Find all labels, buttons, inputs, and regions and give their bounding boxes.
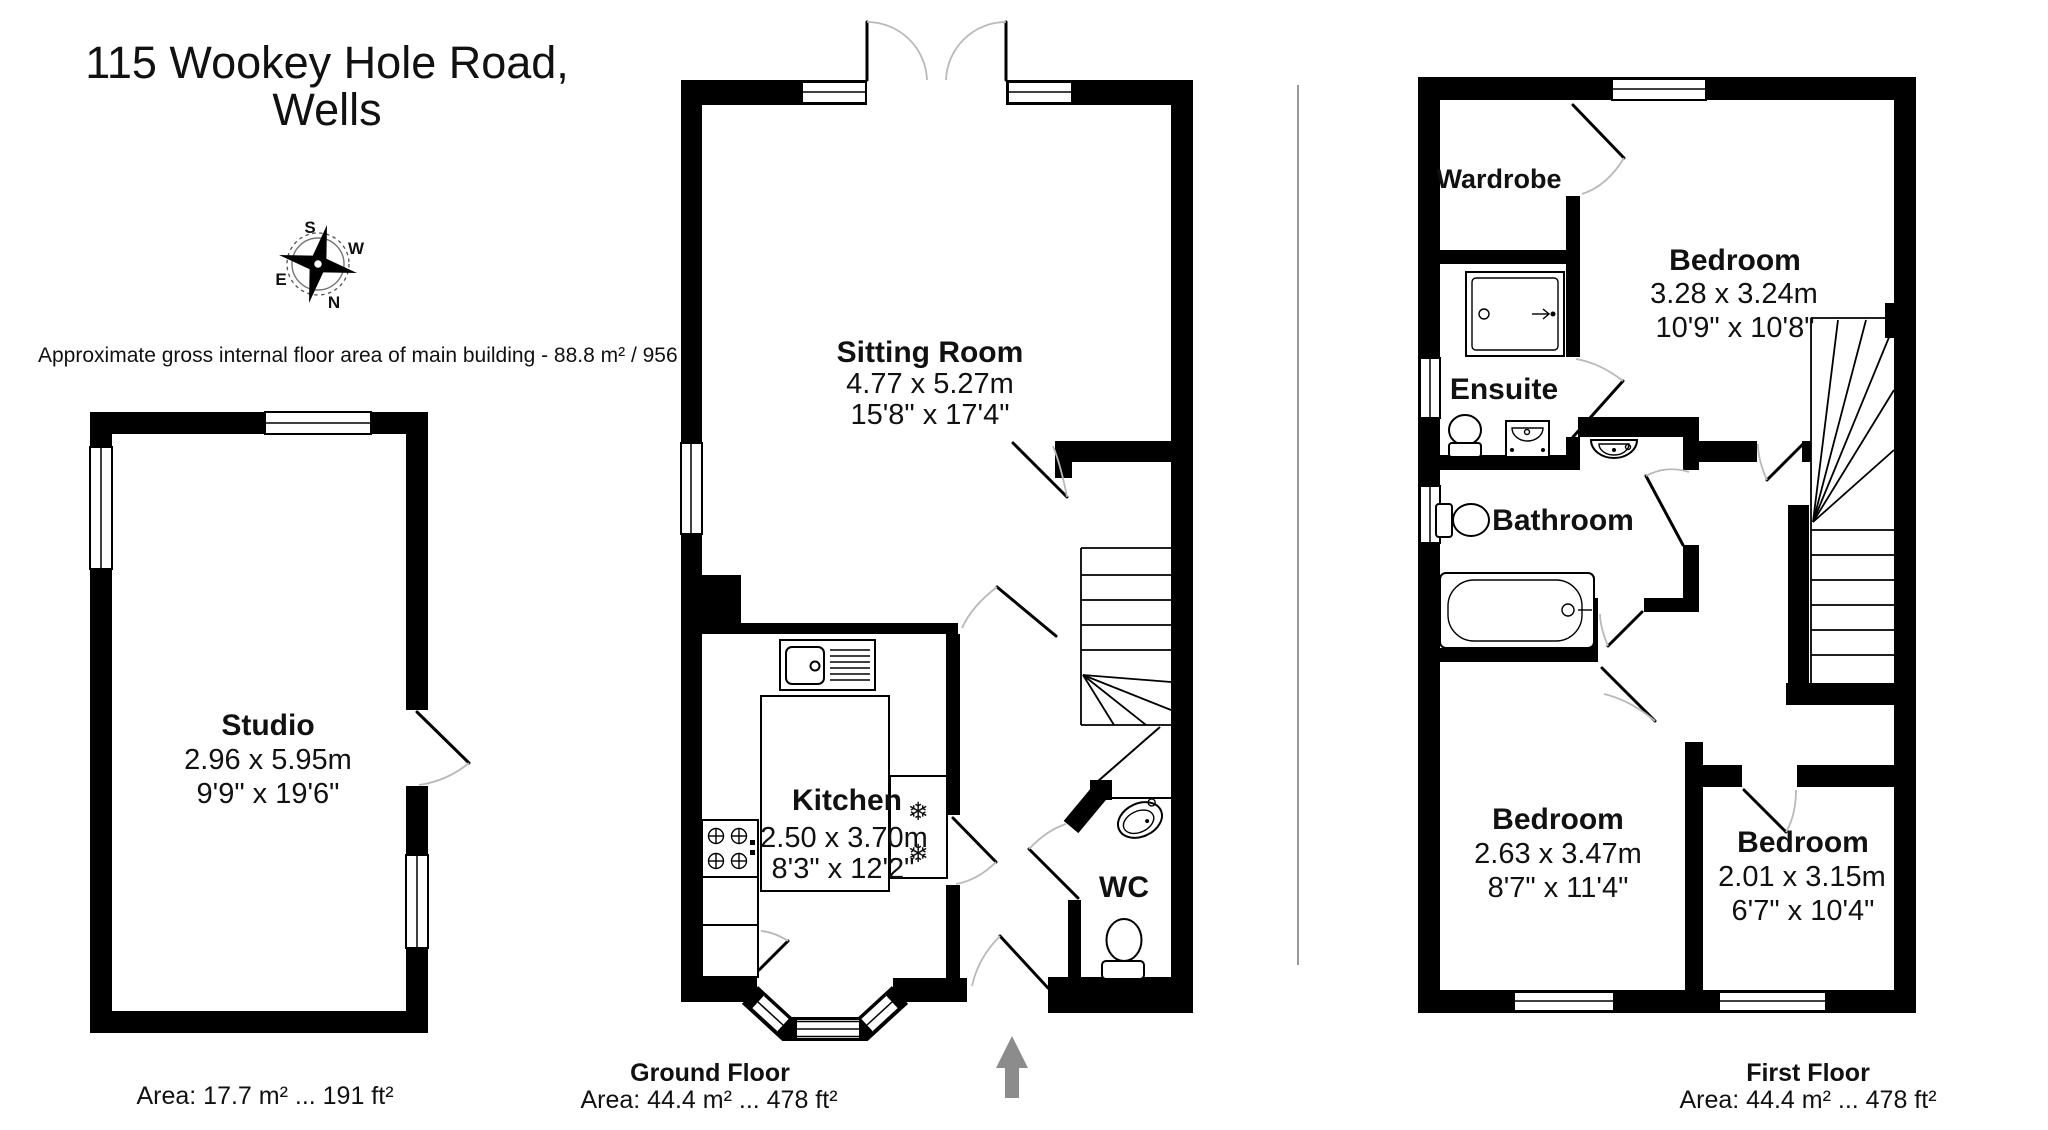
ground-floorplan: ❄ ❄ Sitting Room 4.77 x 5.27m (580, 22, 1193, 1114)
wardrobe-door (1573, 105, 1624, 194)
ground-floor-area: Area: 44.4 m² ... 478 ft² (580, 1086, 837, 1114)
gross-area-note: Approximate gross internal floor area of… (38, 344, 702, 367)
page-title-line2: Wells (272, 84, 381, 135)
bedroom2-metric: 2.63 x 3.47m (1474, 838, 1642, 870)
wc-chamfer-wall (1071, 791, 1101, 827)
ground-stairs (1081, 548, 1171, 725)
page-title-line1: 115 Wookey Hole Road, (85, 37, 569, 88)
kitchen-imperial: 8'3" x 12'2" (772, 853, 915, 885)
first-window-bottom-right (1719, 992, 1826, 1011)
kitchen-counter-door (759, 931, 788, 970)
kitchen-sink (780, 640, 875, 690)
kitchen-door-lower (953, 818, 996, 884)
bedroom1-door (1758, 443, 1804, 480)
bedroom1-name: Bedroom (1669, 244, 1801, 277)
studio-room-metric: 2.96 x 5.95m (184, 744, 352, 776)
bathroom-name: Bathroom (1492, 504, 1634, 537)
first-stairs (1811, 318, 1894, 683)
bedroom2-imperial: 8'7" x 11'4" (1488, 872, 1629, 904)
ground-floor-label: Ground Floor (630, 1059, 790, 1087)
bathroom-toilet (1436, 504, 1489, 537)
wc-name: WC (1099, 871, 1149, 904)
studio-floorplan: Studio 2.96 x 5.95m 9'9" x 19'6" Area: 1… (90, 412, 469, 1110)
first-window-top (1612, 79, 1706, 100)
bay-window (750, 995, 900, 1037)
floorplan-page: 115 Wookey Hole Road, Wells Approximate … (0, 0, 2048, 1130)
bathroom-basin (1591, 440, 1637, 458)
cupboard-door (1600, 612, 1642, 646)
sitting-room-name: Sitting Room (837, 336, 1024, 369)
studio-window-top (265, 412, 371, 434)
first-floorplan: Wardrobe Bedroom 3.28 x 3.24m 10'9" x 10… (1418, 77, 1937, 1114)
ground-window-left (681, 443, 702, 534)
floorplan-drawing: 115 Wookey Hole Road, Wells Approximate … (0, 0, 2048, 1130)
bedroom2-door (1602, 668, 1655, 721)
sitting-room-imperial: 15'8" x 17'4" (850, 399, 1009, 431)
bedroom2-name: Bedroom (1492, 803, 1624, 836)
front-door (972, 936, 1048, 988)
wc-basin (1112, 795, 1168, 844)
bedroom3-metric: 2.01 x 3.15m (1718, 861, 1886, 893)
wardrobe-name: Wardrobe (1436, 164, 1561, 194)
french-doors (867, 22, 1006, 80)
kitchen-counter-2 (702, 925, 758, 977)
studio-window-right (406, 855, 428, 948)
first-window-left-upper (1420, 358, 1440, 418)
first-window-bottom-left (1514, 992, 1614, 1011)
bedroom3-imperial: 6'7" x 10'4" (1732, 895, 1875, 927)
compass-east-label: E (275, 270, 286, 289)
compass-south-label: S (304, 218, 315, 237)
compass-rose-icon: S W E N (270, 216, 366, 312)
bedroom1-metric: 3.28 x 3.24m (1650, 278, 1818, 310)
hob-icon (702, 820, 758, 877)
bath (1440, 573, 1594, 648)
bedroom1-imperial: 10'9" x 10'8" (1655, 312, 1814, 344)
shower (1466, 272, 1564, 356)
compass-north-label: N (328, 293, 340, 312)
kitchen-door-upper (962, 587, 1056, 636)
ground-window-top-right (1008, 82, 1072, 103)
ensuite-name: Ensuite (1450, 373, 1558, 406)
kitchen-metric: 2.50 x 3.70m (760, 822, 928, 854)
studio-window-left (90, 447, 112, 569)
studio-room-imperial: 9'9" x 19'6" (197, 778, 340, 810)
ensuite-basin (1506, 421, 1549, 457)
kitchen-counter-1 (702, 877, 758, 925)
first-floor-area: Area: 44.4 m² ... 478 ft² (1679, 1086, 1936, 1114)
studio-door (417, 712, 469, 785)
sitting-room-metric: 4.77 x 5.27m (846, 368, 1014, 400)
ground-window-top-left (802, 82, 866, 103)
bathroom-door (1646, 469, 1689, 545)
compass-west-label: W (348, 239, 365, 258)
north-arrow-icon (996, 1036, 1028, 1098)
bedroom3-name: Bedroom (1737, 826, 1869, 859)
ensuite-toilet (1449, 415, 1481, 457)
understairs-diagonal (1097, 727, 1160, 782)
first-floor-label: First Floor (1746, 1059, 1870, 1087)
studio-area-label: Area: 17.7 m² ... 191 ft² (136, 1082, 393, 1110)
wc-toilet (1102, 919, 1144, 979)
wc-door (1029, 824, 1078, 898)
studio-room-name: Studio (221, 709, 314, 742)
kitchen-name: Kitchen (792, 784, 902, 817)
